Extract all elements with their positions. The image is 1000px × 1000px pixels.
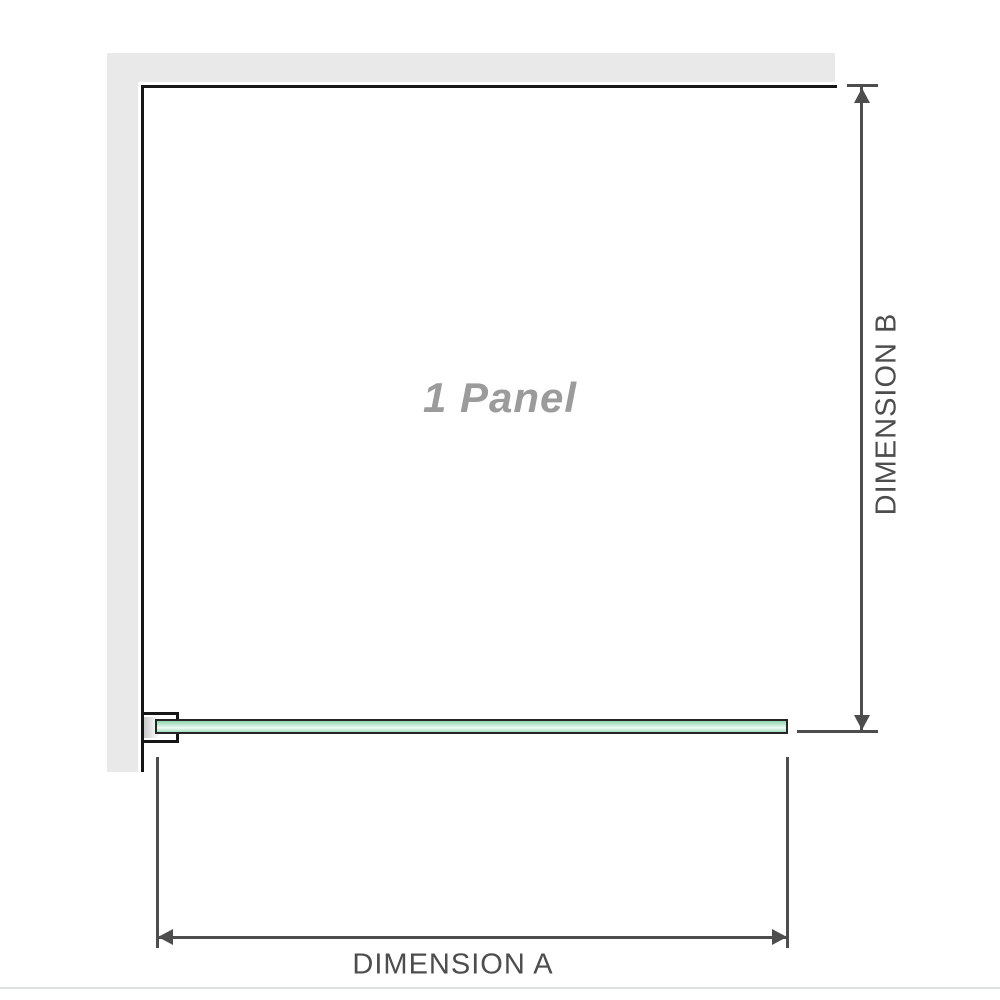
arrow-up-icon [854, 88, 870, 103]
dimension-a-line [159, 936, 787, 939]
arrow-right-icon [772, 929, 787, 945]
dimension-b-cap-bottom [797, 730, 878, 733]
dimension-b-label: DIMENSION B [871, 313, 904, 516]
wall-left [107, 53, 138, 772]
dimension-b-line [860, 87, 863, 730]
panel-count-label: 1 Panel [423, 374, 577, 422]
panel-outline-left [141, 85, 144, 772]
dimension-b-cap-top [847, 84, 878, 87]
bottom-divider [0, 987, 1000, 989]
arrow-left-icon [158, 929, 173, 945]
arrow-down-icon [854, 715, 870, 730]
dimension-a-extension-left [156, 757, 159, 948]
panel-outline-top [141, 85, 837, 88]
dimension-a-extension-right [786, 757, 789, 948]
wall-top [107, 53, 835, 82]
glass-panel [155, 719, 788, 734]
dimension-a-label: DIMENSION A [352, 949, 553, 982]
shower-panel-diagram: 1 Panel DIMENSION B DIMENSION A [0, 0, 1000, 1000]
